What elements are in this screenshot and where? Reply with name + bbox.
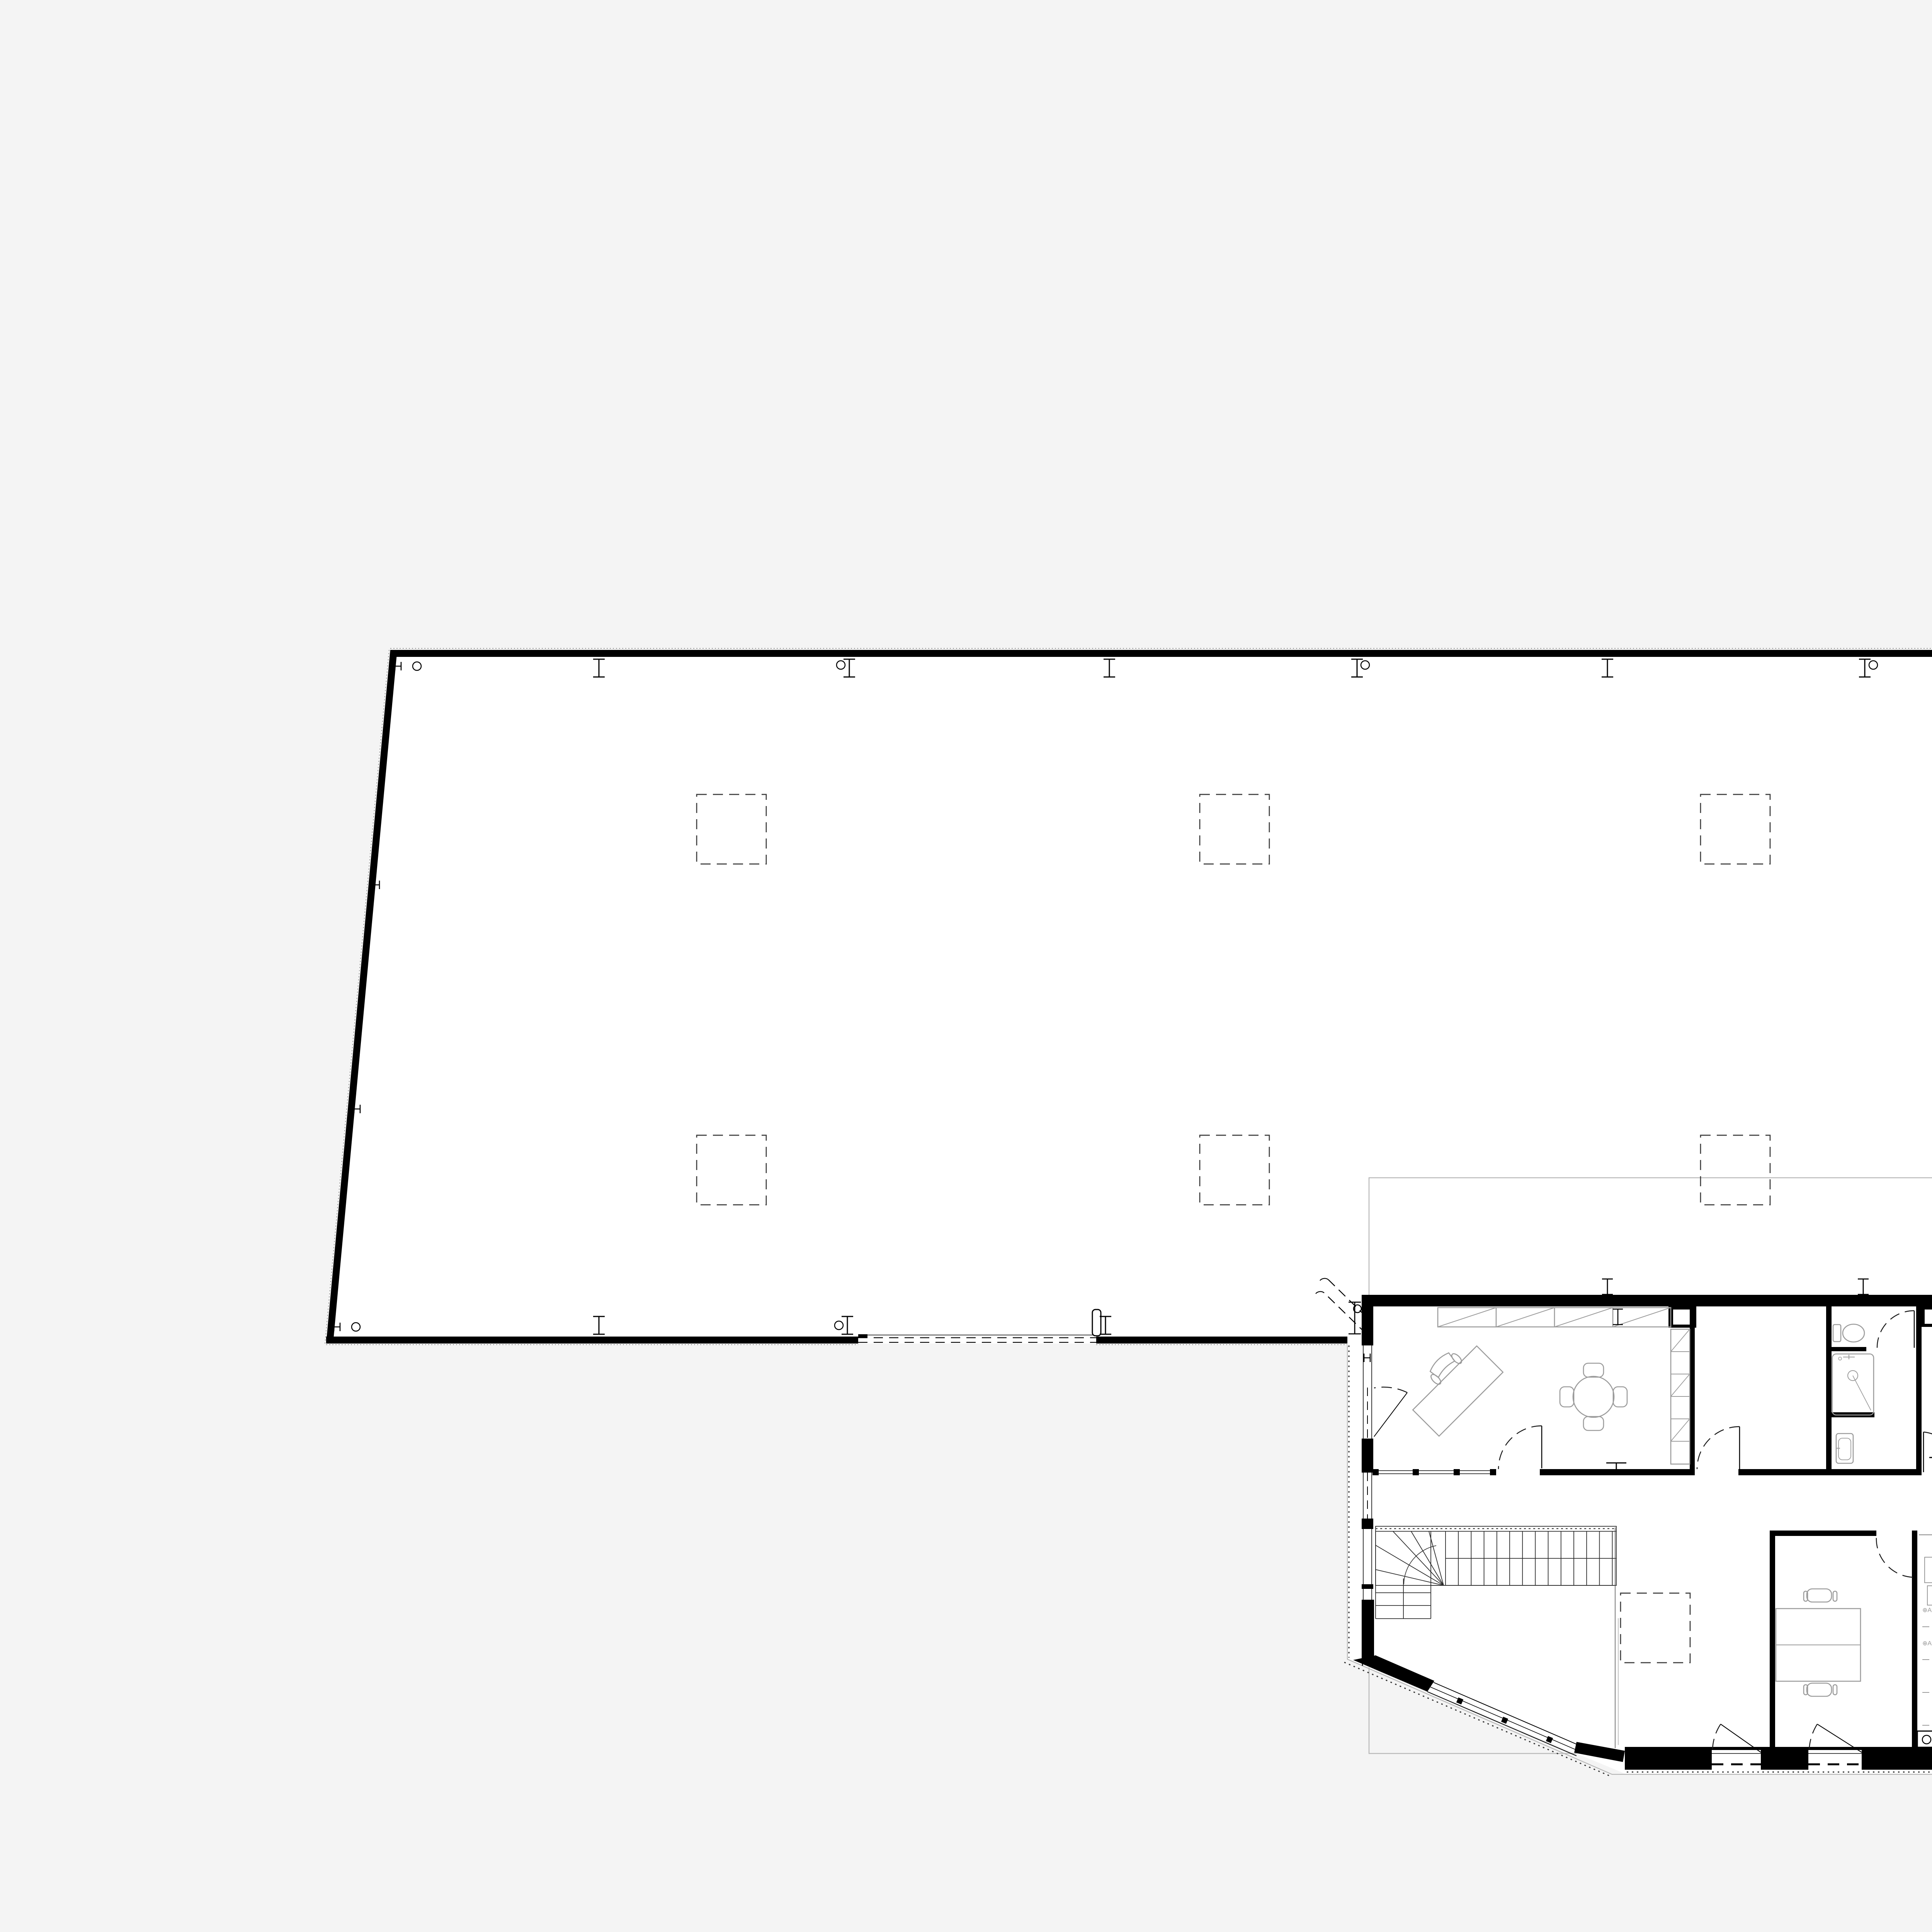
svg-text:⊕Att.LV: ⊕Att.LV	[1922, 1640, 1932, 1647]
svg-text:⊕Att.Evier: ⊕Att.Evier	[1922, 1607, 1932, 1614]
